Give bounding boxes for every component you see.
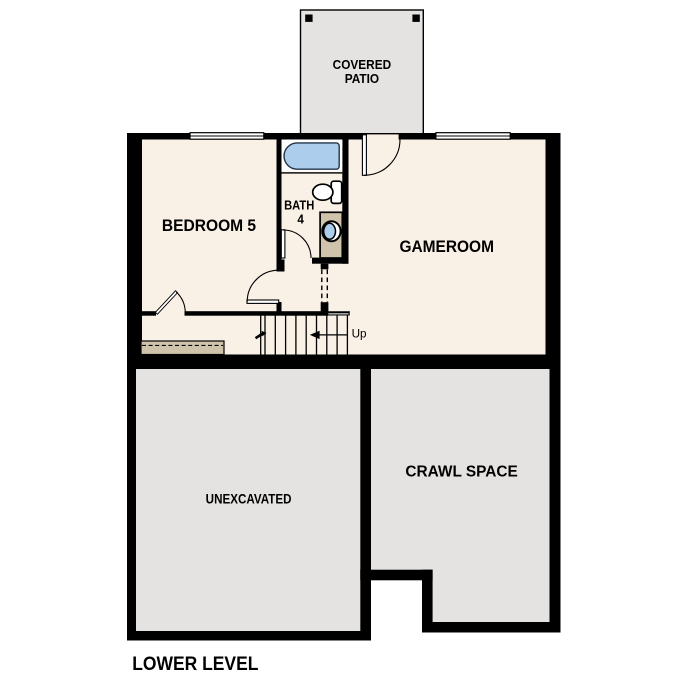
svg-text:LOWER LEVEL: LOWER LEVEL: [132, 653, 258, 675]
svg-text:GAMEROOM: GAMEROOM: [399, 238, 493, 255]
svg-text:PATIO: PATIO: [345, 72, 380, 87]
svg-text:COVERED: COVERED: [333, 57, 391, 72]
svg-text:CRAWL SPACE: CRAWL SPACE: [405, 463, 517, 480]
svg-text:BEDROOM 5: BEDROOM 5: [162, 218, 256, 235]
svg-text:Up: Up: [352, 328, 367, 341]
svg-text:4: 4: [297, 212, 304, 227]
svg-text:UNEXCAVATED: UNEXCAVATED: [206, 492, 292, 507]
svg-text:BATH: BATH: [284, 198, 314, 213]
